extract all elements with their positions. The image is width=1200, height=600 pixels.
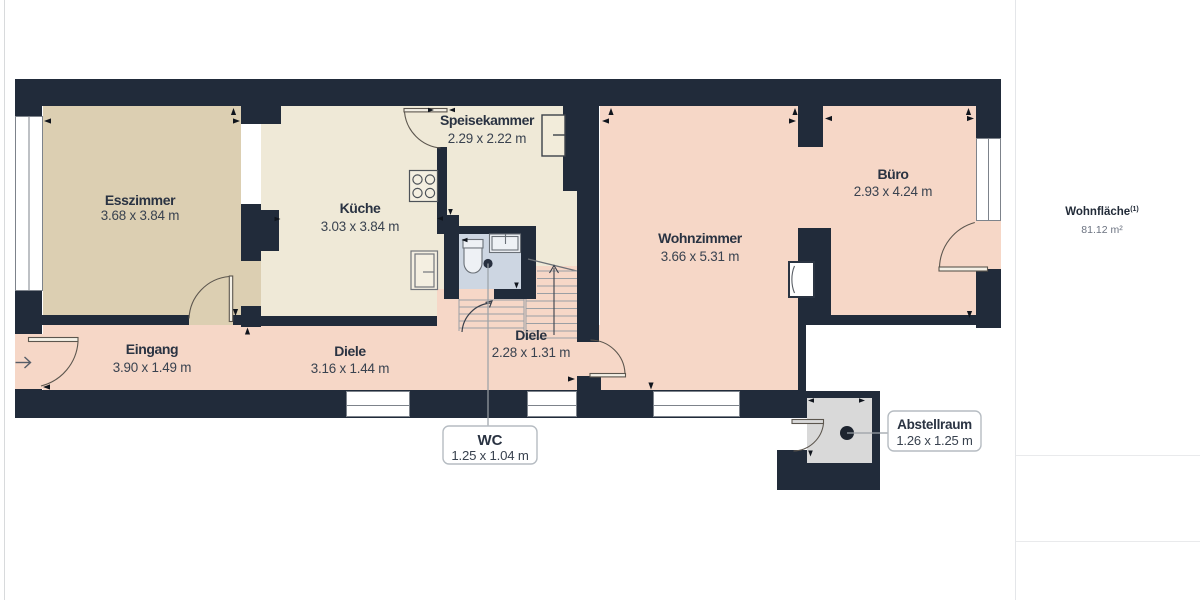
svg-text:Wohnzimmer: Wohnzimmer [658, 230, 743, 246]
svg-text:2.28 x 1.31 m: 2.28 x 1.31 m [492, 345, 571, 360]
svg-text:1.26 x 1.25 m: 1.26 x 1.25 m [896, 433, 972, 448]
svg-text:3.03 x 3.84 m: 3.03 x 3.84 m [321, 219, 400, 234]
svg-text:Abstellraum: Abstellraum [897, 417, 972, 432]
svg-text:2.29 x 2.22 m: 2.29 x 2.22 m [448, 131, 527, 146]
svg-text:Diele: Diele [515, 327, 547, 343]
svg-text:81.12 m²: 81.12 m² [1081, 224, 1123, 236]
svg-text:Eingang: Eingang [126, 341, 178, 357]
svg-text:3.16 x 1.44 m: 3.16 x 1.44 m [311, 361, 390, 376]
svg-text:Esszimmer: Esszimmer [105, 192, 176, 208]
svg-text:Wohnfläche(1): Wohnfläche(1) [1065, 206, 1139, 218]
svg-text:Diele: Diele [334, 343, 366, 359]
svg-text:Büro: Büro [877, 166, 908, 182]
svg-text:2.93 x 4.24 m: 2.93 x 4.24 m [854, 184, 933, 199]
svg-text:3.66 x 5.31 m: 3.66 x 5.31 m [661, 249, 740, 264]
svg-text:3.90 x 1.49 m: 3.90 x 1.49 m [113, 360, 192, 375]
svg-text:Küche: Küche [340, 200, 381, 216]
svg-text:3.68 x 3.84 m: 3.68 x 3.84 m [101, 208, 180, 223]
svg-text:Speisekammer: Speisekammer [440, 112, 535, 128]
svg-text:WC: WC [478, 432, 503, 449]
svg-text:1.25 x 1.04 m: 1.25 x 1.04 m [451, 448, 529, 463]
